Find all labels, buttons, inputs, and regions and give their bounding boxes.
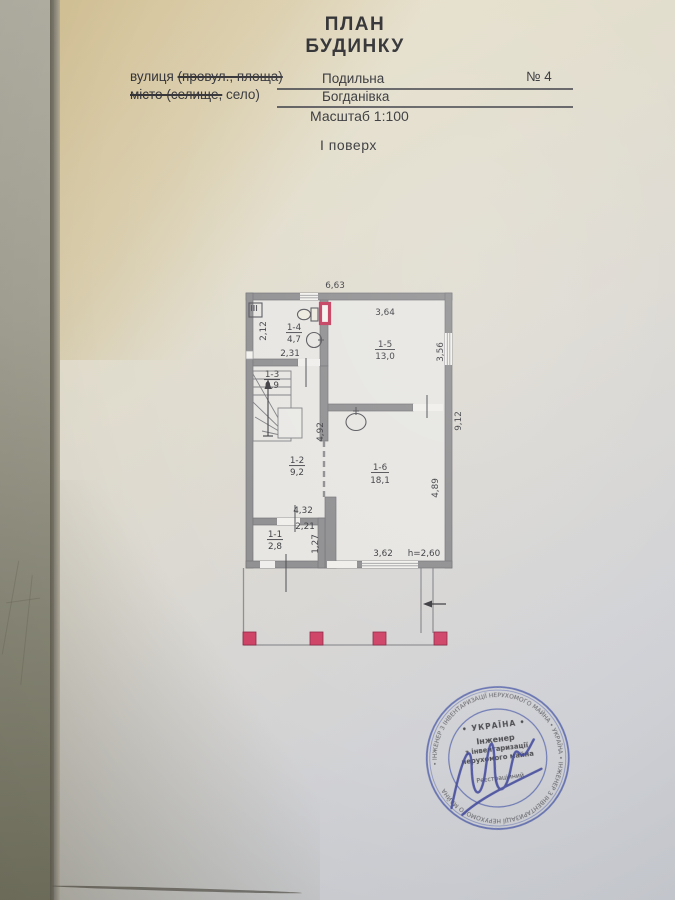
floor-plan-drawing: 6,63 3,64 2,12 1-4 4,7 2,31 1-5 13,0 3,5… xyxy=(228,274,464,666)
room-1-5-area: 13,0 xyxy=(375,352,395,362)
house-number: № 4 xyxy=(526,69,552,84)
room-1-3-num: 1-3 xyxy=(265,370,279,380)
photo-of-document: ПЛАН БУДИНКУ вулиця (провул., площа) Под… xyxy=(0,0,675,900)
city-label: місто (селище, село) xyxy=(130,87,260,102)
street-label-struck: (провул., площа) xyxy=(178,69,283,84)
city-label-plain: село) xyxy=(226,87,260,102)
room-1-2-area: 9,2 xyxy=(290,468,304,478)
room-1-1-area: 2,8 xyxy=(268,542,282,552)
porch-outline xyxy=(244,568,448,645)
entrance-arrow xyxy=(423,601,446,608)
dim-top: 6,63 xyxy=(325,281,345,291)
room-1-3-area: 0,9 xyxy=(265,381,279,391)
stamp-country: • УКРАЇНА • xyxy=(462,717,527,734)
underlying-sheet xyxy=(0,0,54,900)
room-1-6-area: 18,1 xyxy=(370,476,390,486)
dim-492: 4,92 xyxy=(316,422,326,442)
scale-label: Масштаб 1:100 xyxy=(310,108,409,124)
city-label-struck: місто (селище, xyxy=(130,87,222,102)
room-1-4-num: 1-4 xyxy=(287,323,302,333)
room-1-4-area: 4,7 xyxy=(287,335,301,345)
room-1-1-num: 1-1 xyxy=(268,530,282,540)
ghost-line xyxy=(2,561,19,655)
dim-912: 9,12 xyxy=(454,411,464,431)
dim-231: 2,31 xyxy=(280,349,300,359)
doc-title-line2: БУДИНКУ xyxy=(255,36,455,58)
plan-interior xyxy=(246,293,452,568)
porch-columns xyxy=(243,632,447,645)
street-label: вулиця (провул., площа) xyxy=(130,69,283,84)
street-label-plain: вулиця xyxy=(130,69,174,84)
red-door-marker xyxy=(321,304,330,324)
dim-221: 2,21 xyxy=(295,522,315,532)
ghost-line xyxy=(20,575,32,685)
official-stamp: • ІНЖЕНЕР З ІНВЕНТАРИЗАЦІЇ НЕРУХОМОГО МА… xyxy=(407,671,589,850)
dim-356: 3,56 xyxy=(436,342,446,362)
dim-212: 2,12 xyxy=(259,321,269,341)
dim-127: 1,27 xyxy=(311,534,321,554)
room-1-2-num: 1-2 xyxy=(290,456,304,466)
doc-title-line1: ПЛАН xyxy=(255,14,455,36)
dim-height: h=2,60 xyxy=(408,549,441,559)
stamp-seal: • ІНЖЕНЕР З ІНВЕНТАРИЗАЦІЇ НЕРУХОМОГО МА… xyxy=(419,679,577,837)
dim-364: 3,64 xyxy=(375,308,395,318)
city-value: Богданівка xyxy=(322,89,389,104)
dim-362: 3,62 xyxy=(373,549,393,559)
dim-432: 4,32 xyxy=(293,506,313,516)
floor-label: І поверх xyxy=(320,137,377,153)
room-1-5-num: 1-5 xyxy=(378,340,392,350)
street-value: Подильна xyxy=(322,71,384,86)
toilet-icon xyxy=(298,308,319,321)
room-1-6-num: 1-6 xyxy=(373,463,388,473)
page-bottom-edge xyxy=(52,885,302,895)
dim-489: 4,89 xyxy=(431,478,441,498)
